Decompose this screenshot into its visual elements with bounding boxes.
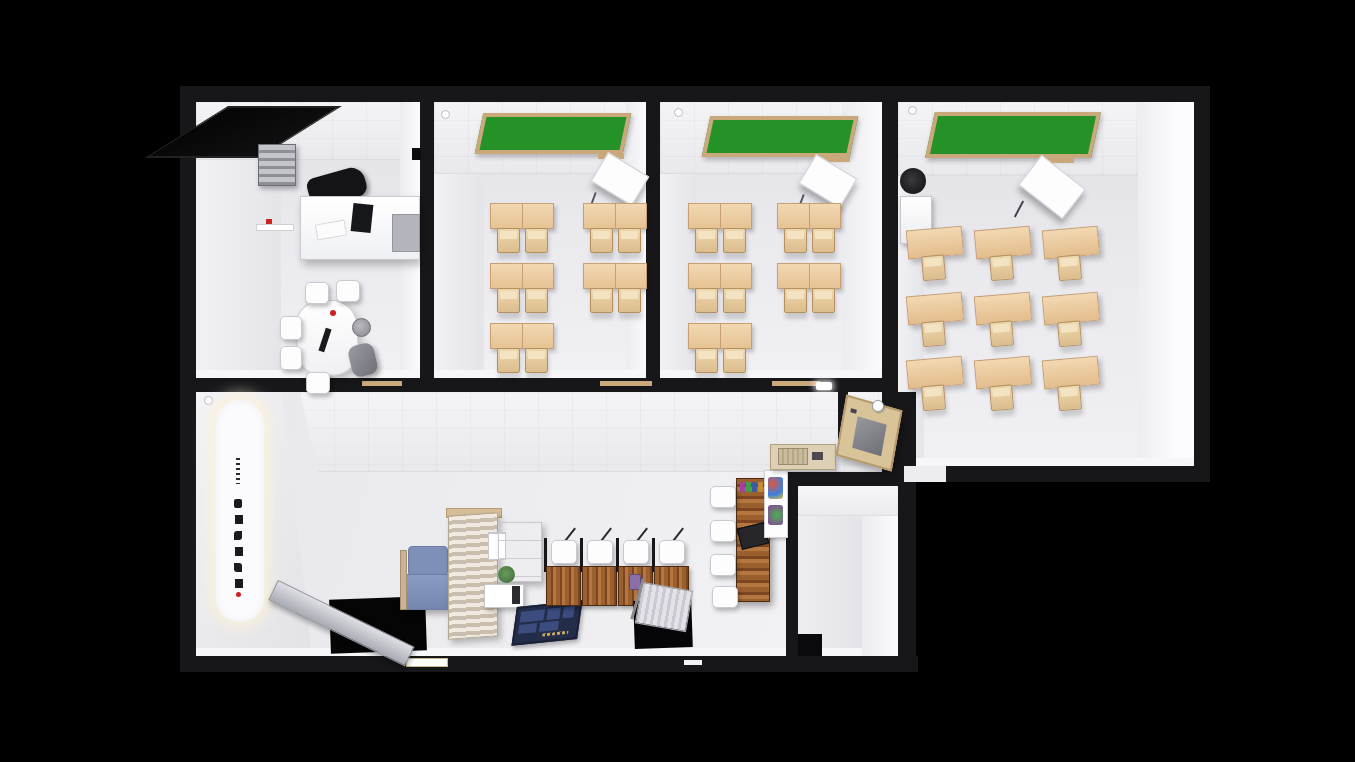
wall-shelf	[256, 224, 294, 231]
carrel-chair	[623, 540, 649, 564]
storage-room-floor-notch	[798, 634, 822, 656]
desk-top	[490, 203, 554, 229]
table-red-item	[330, 310, 336, 316]
ventilation-unit	[258, 144, 296, 186]
sign-glyph	[235, 579, 243, 588]
classroom-3-front-wall-face	[898, 458, 1194, 466]
single-student-desk	[906, 292, 966, 351]
student-desk-pair	[688, 323, 750, 375]
door-dot-classroom3	[908, 106, 917, 115]
mat-text-strip	[542, 631, 568, 637]
desk-top	[490, 263, 554, 289]
desk-top	[688, 263, 752, 289]
student-desk-pair	[688, 203, 750, 255]
office-wall-ac-box	[412, 148, 421, 160]
student-chair	[497, 228, 520, 253]
wall-classroom1-classroom2	[646, 86, 660, 392]
student-chair	[723, 288, 746, 313]
student-chair	[590, 228, 613, 253]
classroom-3-bottom-wall	[946, 466, 1210, 482]
carrel-front-panel	[582, 566, 617, 606]
student-desk-pair	[777, 203, 839, 255]
mat-panel	[520, 609, 545, 623]
student-chair	[618, 228, 641, 253]
student-chair	[525, 288, 548, 313]
door-dot-classroom1	[441, 110, 450, 119]
student-chair	[723, 348, 746, 373]
student-chair	[497, 348, 520, 373]
book-spine	[740, 482, 745, 492]
storage-room-wall-top	[786, 472, 916, 486]
av-speaker	[900, 168, 926, 194]
desk-monitor	[351, 203, 374, 233]
carrel-chair	[551, 540, 577, 564]
student-desk-pair	[688, 263, 750, 315]
student-desk-pair	[490, 263, 552, 315]
single-student-desk	[1042, 356, 1102, 415]
desk-top	[583, 203, 647, 229]
desk-top	[688, 323, 752, 349]
book-spine	[746, 482, 751, 492]
meeting-chair	[336, 280, 360, 302]
study-carrel	[546, 538, 581, 604]
door-dot-classroom2	[674, 108, 683, 117]
student-chair	[590, 288, 613, 313]
carrel-front-panel	[546, 566, 581, 606]
study-carrel	[582, 538, 617, 604]
student-desk-pair	[777, 263, 839, 315]
floor-plan-render	[0, 0, 1355, 762]
counter-chair	[710, 486, 736, 508]
desk-top	[490, 323, 554, 349]
mat-panel	[546, 607, 561, 620]
bottom-wall-mark	[684, 660, 702, 665]
meeting-chair	[306, 372, 330, 394]
carrel-chair	[587, 540, 613, 564]
counter-item-dark	[812, 452, 823, 460]
sink-basin	[778, 448, 808, 465]
shelf-red-item	[266, 219, 272, 224]
carrel-chair	[659, 540, 685, 564]
sign-glyph	[234, 531, 242, 540]
trash-bin	[352, 318, 371, 337]
sign-glyph	[234, 563, 242, 572]
door-threshold-classroom2	[772, 381, 820, 386]
counter-chair	[710, 520, 736, 542]
student-chair	[1057, 320, 1082, 347]
wall-hall-right	[898, 392, 916, 672]
book-spine	[752, 482, 757, 492]
illuminated-sign	[216, 400, 264, 622]
stair-ramp-right	[635, 582, 694, 632]
student-chair	[525, 228, 548, 253]
single-student-desk	[906, 356, 966, 415]
student-chair	[618, 288, 641, 313]
mat-panel	[539, 621, 559, 632]
student-chair	[695, 288, 718, 313]
door-gap-classroom3	[904, 466, 946, 482]
wall-poster	[764, 470, 788, 538]
single-student-desk	[906, 226, 966, 285]
chalkboard-classroom1	[475, 113, 632, 154]
student-chair	[1057, 384, 1082, 411]
door-dot-study-hall	[204, 396, 213, 405]
counter-chair	[712, 586, 738, 608]
sign-glyph	[234, 499, 242, 508]
student-chair	[989, 384, 1014, 411]
student-chair	[921, 384, 946, 411]
desk-top	[777, 263, 841, 289]
student-chair	[695, 348, 718, 373]
lounge-chair-seat	[404, 574, 450, 610]
student-chair	[525, 348, 548, 373]
sign-red-dot	[236, 592, 241, 597]
entrance-mat	[511, 600, 582, 646]
lounge-chair-arm	[400, 550, 407, 610]
mat-panel	[518, 623, 537, 634]
student-desk-pair	[490, 203, 552, 255]
poster-art	[768, 477, 783, 499]
student-chair	[989, 254, 1014, 281]
student-desk-pair	[583, 203, 645, 255]
wall-office-classroom1	[420, 86, 434, 392]
outer-wall-top	[180, 86, 1210, 102]
meeting-chair	[280, 316, 302, 340]
sign-small-text-mark	[236, 458, 240, 484]
single-student-desk	[1042, 226, 1102, 285]
desk-top	[777, 203, 841, 229]
student-chair	[695, 228, 718, 253]
chalkboard-classroom2	[702, 116, 859, 157]
potted-plant	[498, 566, 515, 583]
book-spine	[758, 482, 763, 492]
student-desk-pair	[583, 263, 645, 315]
student-chair	[921, 254, 946, 281]
student-chair	[1057, 254, 1082, 281]
ceiling-light	[816, 382, 832, 390]
sign-glyph	[235, 547, 243, 556]
single-student-desk	[974, 356, 1034, 415]
hatch-latch	[850, 408, 856, 414]
meeting-chair	[305, 282, 329, 304]
hatch-opening	[852, 416, 887, 456]
student-chair	[989, 320, 1014, 347]
chalkboard-classroom3	[925, 112, 1101, 158]
sign-glyph	[235, 515, 243, 524]
student-chair	[921, 320, 946, 347]
reception-desk-side-panel	[392, 214, 420, 252]
console-accent	[512, 586, 520, 604]
student-desk-pair	[490, 323, 552, 375]
lounge-chair-back	[408, 546, 448, 576]
student-chair	[497, 288, 520, 313]
mat-panel	[562, 606, 575, 618]
counter-chair	[710, 554, 736, 576]
storage-room-back-wall-face	[798, 486, 898, 516]
outer-wall-right	[1194, 86, 1210, 482]
desk-top	[583, 263, 647, 289]
student-chair	[812, 228, 835, 253]
single-student-desk	[1042, 292, 1102, 351]
single-student-desk	[974, 226, 1034, 285]
student-chair	[723, 228, 746, 253]
single-student-desk	[974, 292, 1034, 351]
classroom-3-right-wall-face	[1138, 102, 1194, 466]
door-threshold-classroom1	[600, 381, 652, 386]
student-chair	[812, 288, 835, 313]
meeting-chair	[280, 346, 302, 370]
student-chair	[784, 288, 807, 313]
student-chair	[784, 228, 807, 253]
wall-dispenser	[872, 400, 884, 412]
entrance-door-mark	[406, 658, 448, 667]
door-threshold-office	[362, 381, 402, 386]
outer-wall-bottom	[180, 656, 918, 672]
desk-top	[688, 203, 752, 229]
poster-art	[768, 505, 783, 525]
